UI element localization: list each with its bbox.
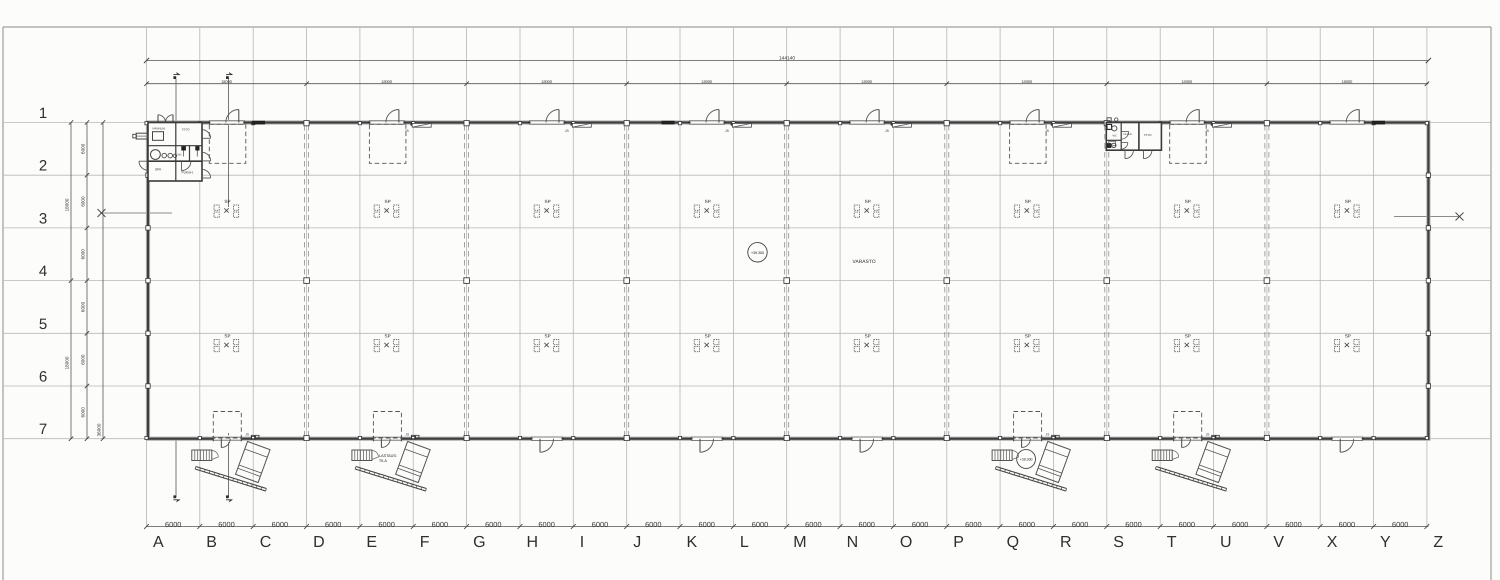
svg-text:36000: 36000 — [97, 423, 102, 436]
svg-text:6000: 6000 — [80, 196, 85, 207]
svg-text:SP: SP — [705, 199, 711, 204]
svg-text:U: U — [1220, 534, 1232, 551]
svg-text:6000: 6000 — [81, 354, 86, 365]
svg-text:6000: 6000 — [1019, 520, 1035, 529]
svg-text:6000: 6000 — [485, 520, 501, 529]
svg-text:SP: SP — [705, 334, 711, 339]
svg-text:SPK: SPK — [155, 168, 162, 172]
svg-text:18000: 18000 — [541, 79, 553, 84]
svg-text:6000: 6000 — [272, 520, 288, 529]
svg-text:Z: Z — [1433, 534, 1443, 551]
svg-text:S: S — [1113, 534, 1124, 551]
svg-text:T: T — [1167, 534, 1177, 551]
svg-text:G: G — [473, 534, 485, 551]
svg-text:6000: 6000 — [1179, 520, 1195, 529]
svg-text:6000: 6000 — [325, 520, 341, 529]
svg-text:3: 3 — [39, 210, 47, 227]
svg-text:K: K — [687, 534, 698, 551]
svg-text:6000: 6000 — [858, 520, 874, 529]
svg-text:18000: 18000 — [381, 79, 393, 84]
svg-text:6000: 6000 — [165, 520, 181, 529]
svg-text:6000: 6000 — [1232, 520, 1248, 529]
svg-text:+39.300: +39.300 — [1020, 458, 1033, 462]
svg-text:JS: JS — [245, 432, 249, 436]
svg-text:JS: JS — [405, 432, 409, 436]
svg-text:Q: Q — [1007, 534, 1019, 551]
svg-text:B: B — [206, 534, 217, 551]
svg-text:Y: Y — [1380, 534, 1391, 551]
svg-text:18000: 18000 — [65, 198, 70, 211]
svg-text:L: L — [740, 534, 749, 551]
svg-text:18000: 18000 — [1021, 79, 1033, 84]
svg-text:I: I — [580, 534, 584, 551]
svg-text:SP: SP — [1345, 199, 1351, 204]
svg-text:J: J — [633, 534, 641, 551]
svg-text:P: P — [953, 534, 964, 551]
svg-text:6000: 6000 — [1125, 520, 1141, 529]
svg-text:TSTO: TSTO — [182, 128, 191, 132]
svg-text:O: O — [900, 534, 912, 551]
svg-text:V: V — [1273, 534, 1284, 551]
svg-text:7: 7 — [39, 421, 47, 438]
svg-text:18000: 18000 — [1341, 79, 1353, 84]
svg-text:6000: 6000 — [1072, 520, 1088, 529]
svg-text:6000: 6000 — [81, 301, 86, 312]
svg-text:PUKUH.: PUKUH. — [182, 171, 194, 175]
svg-text:4: 4 — [39, 263, 47, 280]
svg-text:6000: 6000 — [1285, 520, 1301, 529]
svg-text:+39.300: +39.300 — [751, 251, 764, 255]
svg-text:6000: 6000 — [912, 520, 928, 529]
svg-text:6000: 6000 — [1339, 520, 1355, 529]
svg-text:JS: JS — [1206, 432, 1210, 436]
svg-text:SP: SP — [385, 199, 391, 204]
svg-text:SP: SP — [1025, 199, 1031, 204]
svg-text:SP: SP — [865, 199, 871, 204]
svg-text:18000: 18000 — [65, 356, 70, 369]
svg-text:5: 5 — [39, 316, 47, 333]
svg-text:6000: 6000 — [645, 520, 661, 529]
svg-text:6000: 6000 — [432, 520, 448, 529]
svg-text:1: 1 — [39, 105, 47, 122]
svg-text:WC: WC — [1113, 135, 1117, 138]
svg-text:6000: 6000 — [698, 520, 714, 529]
svg-text:SP: SP — [1345, 334, 1351, 339]
svg-text:6000: 6000 — [218, 520, 234, 529]
svg-text:6000: 6000 — [592, 520, 608, 529]
svg-text:2: 2 — [39, 158, 47, 175]
svg-text:6000: 6000 — [378, 520, 394, 529]
svg-text:6000: 6000 — [81, 407, 86, 418]
svg-text:F: F — [420, 534, 430, 551]
svg-text:6000: 6000 — [805, 520, 821, 529]
svg-text:6000: 6000 — [80, 249, 85, 260]
svg-text:M: M — [793, 534, 806, 551]
svg-text:TILA: TILA — [379, 459, 387, 463]
svg-text:SP: SP — [1185, 334, 1191, 339]
svg-text:18000: 18000 — [1181, 79, 1193, 84]
svg-text:6: 6 — [39, 369, 47, 386]
svg-text:SP: SP — [865, 334, 871, 339]
svg-text:TSTO: TSTO — [1144, 133, 1153, 137]
svg-text:H: H — [527, 534, 539, 551]
svg-text:6000: 6000 — [752, 520, 768, 529]
svg-text:LASTAUS-: LASTAUS- — [379, 454, 398, 458]
svg-text:PANNUH.: PANNUH. — [153, 127, 166, 131]
svg-text:18000: 18000 — [221, 79, 233, 84]
svg-text:VARASTO: VARASTO — [853, 259, 876, 265]
svg-text:E: E — [366, 534, 377, 551]
svg-text:SP: SP — [545, 199, 551, 204]
svg-text:JS: JS — [1046, 432, 1050, 436]
svg-text:SP: SP — [1025, 334, 1031, 339]
svg-text:A: A — [153, 534, 164, 551]
svg-text:18000: 18000 — [701, 79, 713, 84]
svg-text:SP: SP — [385, 334, 391, 339]
svg-text:6000: 6000 — [965, 520, 981, 529]
svg-text:C: C — [260, 534, 272, 551]
svg-text:SP: SP — [1185, 199, 1191, 204]
svg-text:18000: 18000 — [861, 79, 873, 84]
svg-text:SP: SP — [224, 334, 230, 339]
svg-text:R: R — [1060, 534, 1072, 551]
svg-text:6000: 6000 — [80, 143, 85, 154]
svg-text:144140: 144140 — [779, 56, 795, 62]
svg-text:N: N — [847, 534, 859, 551]
svg-text:SP: SP — [545, 334, 551, 339]
svg-text:6000: 6000 — [538, 520, 554, 529]
svg-text:WC: WC — [178, 154, 182, 157]
svg-text:SP: SP — [224, 199, 230, 204]
svg-text:D: D — [313, 534, 325, 551]
svg-text:6000: 6000 — [1392, 520, 1408, 529]
svg-text:X: X — [1327, 534, 1338, 551]
